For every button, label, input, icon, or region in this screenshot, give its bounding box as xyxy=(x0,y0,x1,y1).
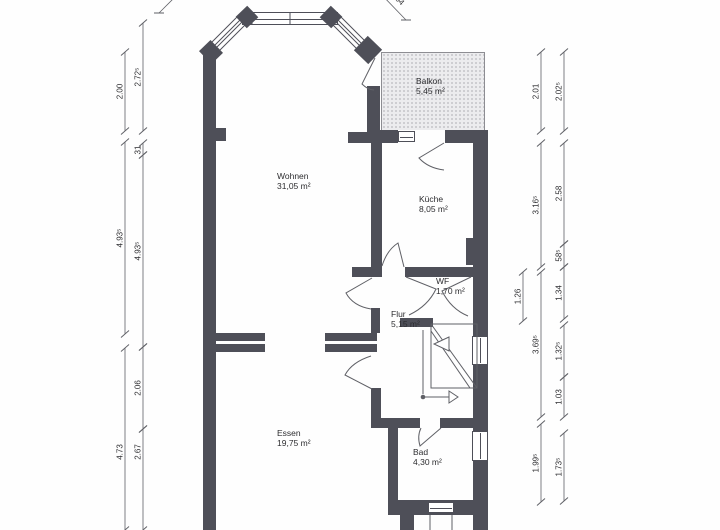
dimension-layer: 2.004.93⁵4.732.72⁵314.93⁵2.062.671.262.0… xyxy=(116,0,569,530)
dimension-label: 2.58 xyxy=(555,185,564,201)
dimension-label: 1.73⁵ xyxy=(555,458,564,477)
dimension-label: 4.93⁵ xyxy=(116,229,125,248)
dimension-label: 1.03 xyxy=(555,389,564,405)
dimension-label: 1.32⁵ xyxy=(555,342,564,361)
dimension-label: 2.06 xyxy=(134,380,143,396)
dimension-label: 4.73 xyxy=(116,444,125,460)
dimension-label: 3.16⁵ xyxy=(532,196,541,215)
stair-diagonal xyxy=(431,324,477,388)
dimension-label: 2.00 xyxy=(116,83,125,99)
door-bad xyxy=(419,428,441,446)
dimension-label: 2.67 xyxy=(134,444,143,460)
dimension-label: 2.02⁵ xyxy=(555,82,564,101)
stair-diagonal xyxy=(431,331,470,388)
door-wohnen-flur xyxy=(346,278,372,309)
walking-line-start-dot xyxy=(421,395,426,400)
dimension-label: 1.34 xyxy=(555,285,564,301)
door-wf-right xyxy=(442,277,471,316)
dimension-label: 1.26 xyxy=(514,288,523,304)
dimension-label: 2.72⁵ xyxy=(134,68,143,87)
bay-corner-blocks xyxy=(199,6,382,64)
door-kueche-balkon xyxy=(419,143,444,170)
stair-up-arrow-icon xyxy=(449,391,458,403)
dimension-label: 4.93⁵ xyxy=(134,242,143,261)
dimension-label: 1.99⁵ xyxy=(532,454,541,473)
door-wf-left xyxy=(406,277,436,315)
dimension-line-diagonal xyxy=(159,0,177,13)
door-flur-essen xyxy=(345,356,372,389)
dimension-label: 31 xyxy=(134,145,143,154)
dimension-label: 58⁵ xyxy=(555,249,564,261)
dimension-label: 04 xyxy=(393,0,406,7)
plan-linework: 2.004.93⁵4.732.72⁵314.93⁵2.062.671.262.0… xyxy=(0,0,720,530)
door-kueche-flur xyxy=(382,243,404,267)
dimension-label: 2.01 xyxy=(532,83,541,99)
floor-plan: Wohnen 31,05 m² Balkon 5,45 m² Küche 8,0… xyxy=(0,0,720,530)
dimension-label: 3.69⁵ xyxy=(532,335,541,354)
